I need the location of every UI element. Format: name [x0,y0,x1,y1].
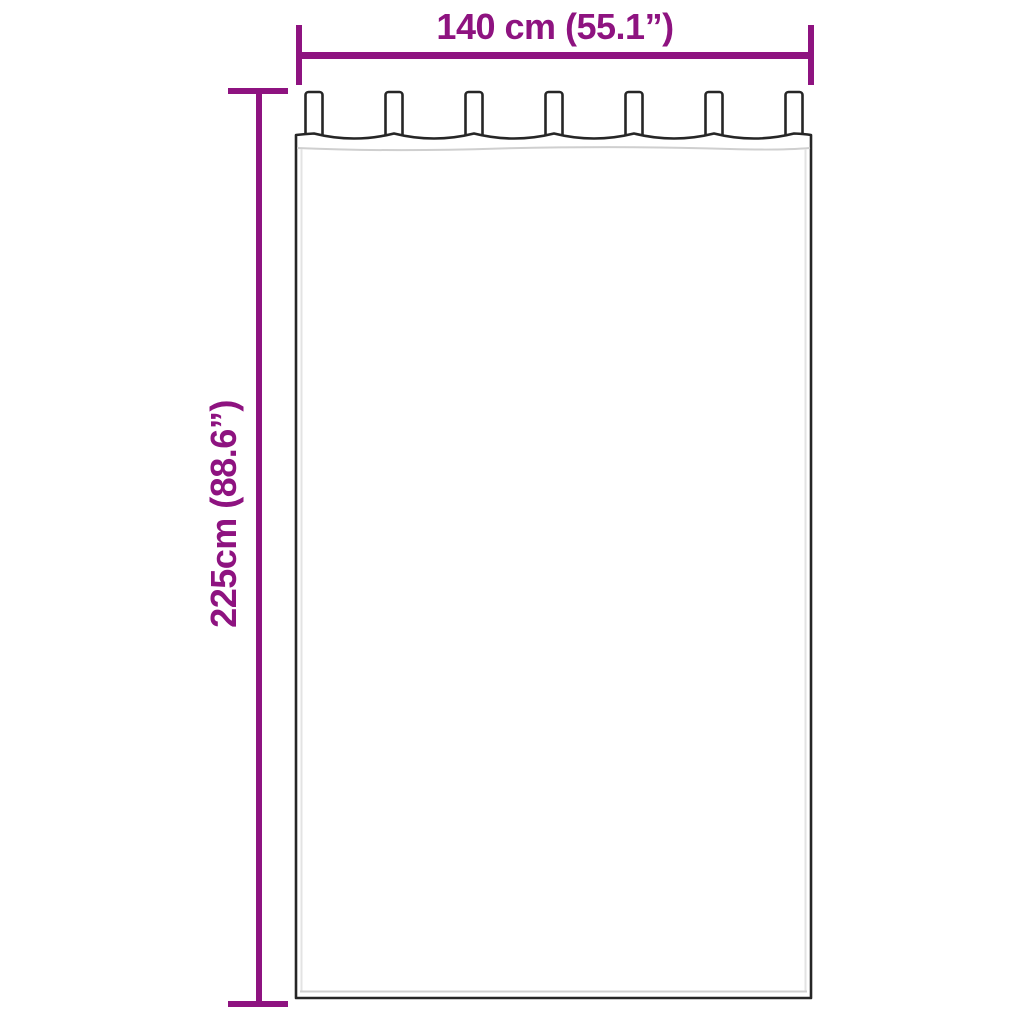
height-dimension-line [256,88,262,1007]
width-dimension-line [299,52,811,59]
curtain-panel [296,134,811,999]
width-dimension-label: 140 cm (55.1”) [299,6,811,48]
width-dimension-tick-left [296,25,302,85]
height-dimension-label: 225cm (88.6”) [203,214,245,814]
height-dimension-tick-top [228,88,288,94]
height-dimension-tick-bottom [228,1001,288,1007]
dimension-diagram: 140 cm (55.1”) 225cm (88.6”) [0,0,1024,1024]
width-dimension-tick-right [808,25,814,85]
curtain-illustration [280,85,824,1010]
